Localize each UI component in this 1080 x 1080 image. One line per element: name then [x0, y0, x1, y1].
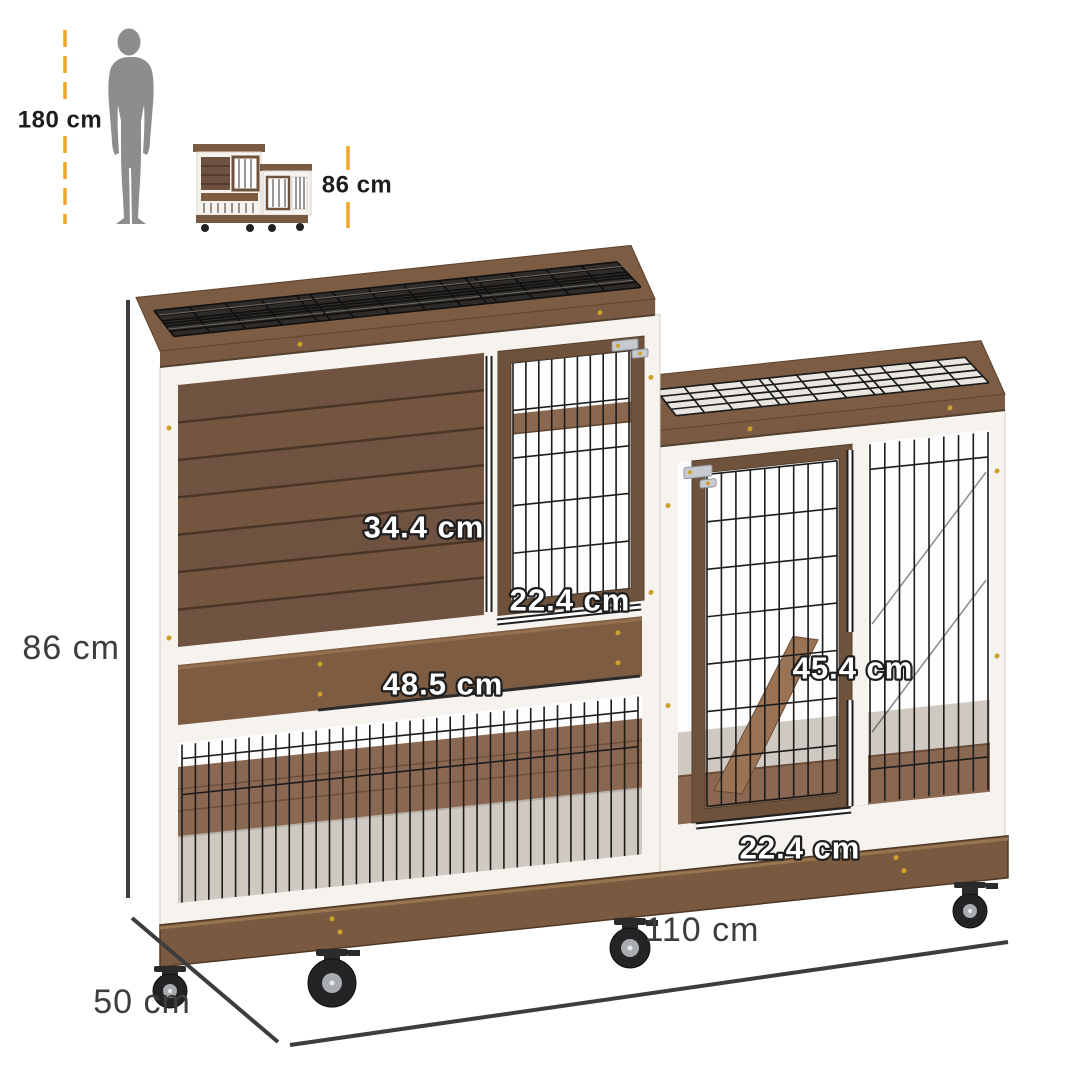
- mini-left-roof: [193, 144, 265, 152]
- mini-slat-panel: [201, 157, 230, 190]
- width-dim-line: [290, 942, 1008, 1045]
- mini-height-label: 86 cm: [322, 172, 393, 199]
- overall-depth-label: 50 cm: [93, 983, 191, 1021]
- mini-run-door: [267, 177, 289, 209]
- mini-right-roof: [260, 164, 312, 171]
- hutch-door-height-label: 34.4 cm: [364, 510, 485, 545]
- run-section: [636, 338, 1005, 875]
- silhouette-head: [118, 29, 141, 56]
- mini-wheels: [201, 223, 304, 232]
- product-dimension-diagram: 180 cm 86 cm: [0, 0, 1080, 1080]
- run-stile: [852, 443, 868, 807]
- hutch-door-width-label: 22.4 cm: [510, 583, 631, 618]
- mini-base: [196, 215, 308, 223]
- wheel-front-left: [308, 949, 360, 1007]
- silhouette-body: [108, 57, 153, 224]
- scene-svg: 180 cm 86 cm: [0, 0, 1080, 1080]
- mini-drawer: [201, 193, 258, 201]
- wheel-front-right: [953, 882, 998, 928]
- run-door-width-label: 22.4 cm: [740, 831, 861, 866]
- human-silhouette-icon: [108, 29, 153, 225]
- hutch-door-interior: [511, 350, 631, 601]
- overall-height-label: 86 cm: [22, 629, 120, 667]
- wood-slat-panel: [178, 353, 484, 647]
- overall-width-label: 110 cm: [645, 911, 760, 949]
- run-door-height-label: 45.4 cm: [793, 651, 914, 686]
- human-height-label: 180 cm: [18, 107, 102, 134]
- mini-product-icon: [193, 144, 312, 232]
- scale-reference: 180 cm 86 cm: [18, 29, 392, 233]
- hutch-door: [498, 336, 648, 616]
- tray-width-label: 48.5 cm: [383, 667, 504, 702]
